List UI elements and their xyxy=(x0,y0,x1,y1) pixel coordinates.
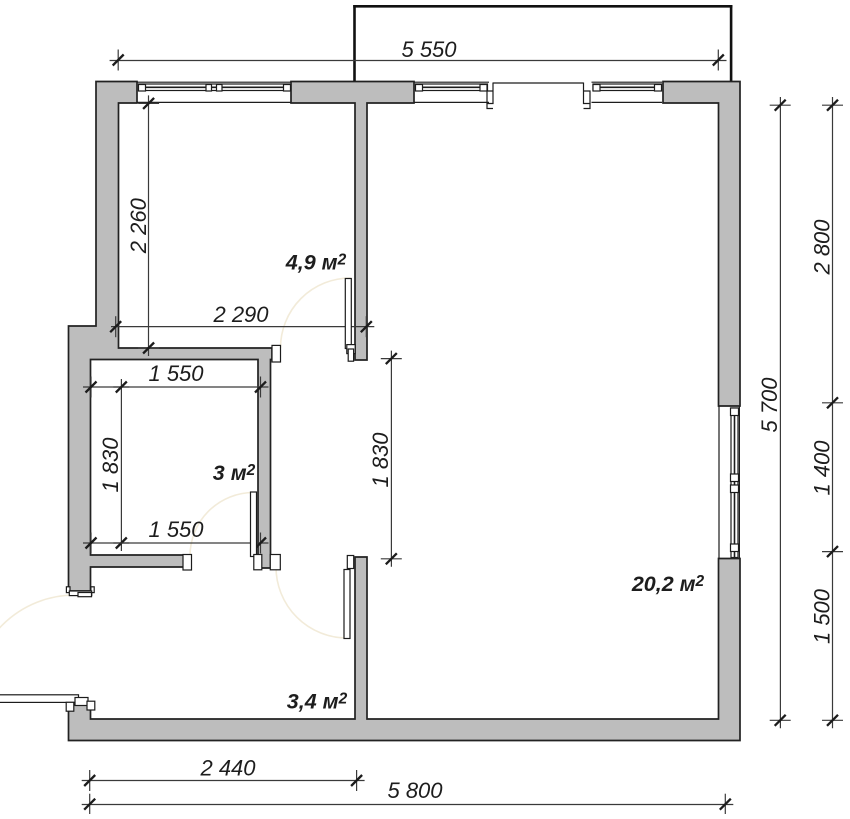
svg-text:1 500: 1 500 xyxy=(810,588,835,644)
svg-text:1 550: 1 550 xyxy=(148,361,204,386)
svg-text:1 830: 1 830 xyxy=(368,432,393,488)
svg-text:4,9 м2: 4,9 м2 xyxy=(285,251,347,275)
svg-text:2 260: 2 260 xyxy=(126,197,151,254)
svg-text:2 290: 2 290 xyxy=(212,302,269,327)
svg-text:1 830: 1 830 xyxy=(98,437,123,493)
svg-text:3,4 м2: 3,4 м2 xyxy=(287,690,348,714)
svg-text:1 550: 1 550 xyxy=(148,517,204,542)
svg-text:1 400: 1 400 xyxy=(810,440,835,496)
svg-text:5 550: 5 550 xyxy=(401,37,457,62)
svg-text:2 800: 2 800 xyxy=(810,219,835,276)
svg-text:20,2 м2: 20,2 м2 xyxy=(631,572,705,596)
svg-text:5 700: 5 700 xyxy=(757,377,782,433)
svg-text:2 440: 2 440 xyxy=(199,756,256,781)
svg-text:5 800: 5 800 xyxy=(387,778,443,803)
